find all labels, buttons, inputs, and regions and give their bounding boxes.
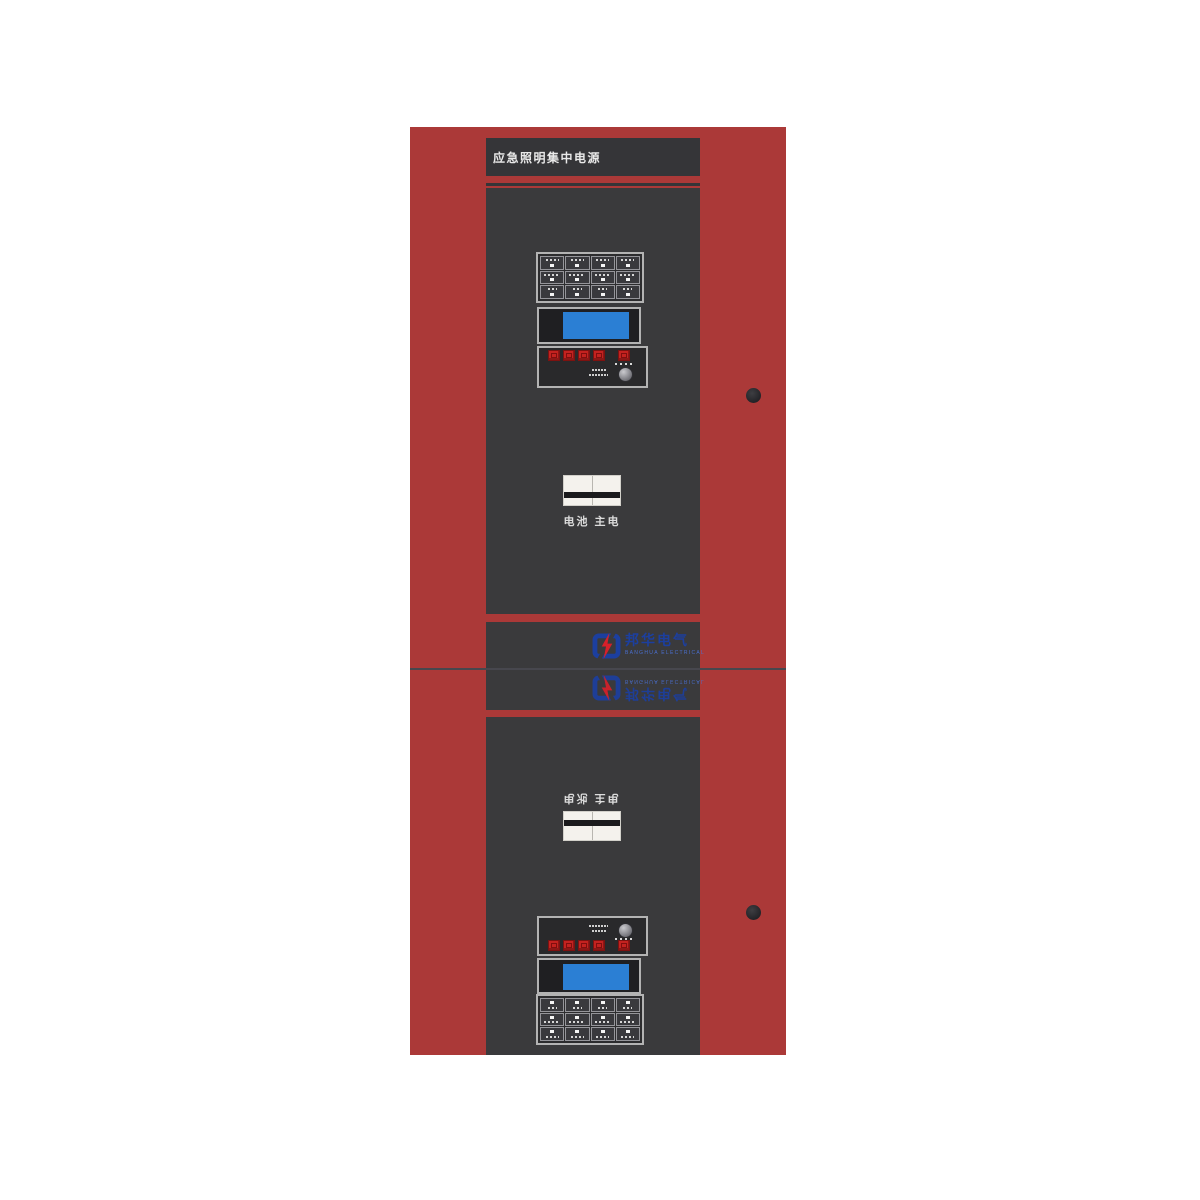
micro-label	[595, 1021, 611, 1023]
indicator-button[interactable]	[616, 271, 640, 285]
micro-label	[569, 1021, 585, 1023]
micro-label	[620, 274, 636, 276]
indicator-button[interactable]	[591, 271, 615, 285]
red-button-3[interactable]	[578, 350, 590, 361]
indicator-led	[601, 1001, 605, 1004]
top-breaker-switch[interactable]	[563, 475, 621, 506]
bottom-breaker-switch[interactable]	[563, 811, 621, 841]
bottom-unit-panel: 电池 主电	[486, 717, 700, 1055]
indicator-led	[626, 264, 630, 267]
top-control-panel	[537, 346, 648, 388]
page: 应急照明集中电源	[0, 0, 1200, 1200]
indicator-led	[575, 1001, 579, 1004]
micro-label	[621, 1036, 634, 1038]
bottom-indicator-button-grid	[536, 994, 644, 1045]
indicator-led	[601, 293, 605, 296]
indicator-button[interactable]	[616, 1027, 640, 1041]
brand-name: 邦华电气	[625, 633, 705, 648]
micro-label	[596, 1036, 609, 1038]
red-button-1[interactable]	[548, 940, 560, 951]
indicator-led	[550, 1030, 554, 1033]
micro-label	[571, 1036, 584, 1038]
micro-label	[569, 274, 585, 276]
indicator-led	[550, 278, 554, 281]
micro-label	[595, 274, 611, 276]
indicator-led	[626, 1030, 630, 1033]
indicator-button[interactable]	[565, 998, 589, 1012]
breaker-toggle-band	[564, 820, 620, 826]
micro-caption	[589, 369, 608, 376]
top-lcd-screen	[563, 312, 629, 339]
red-button-2[interactable]	[563, 940, 575, 951]
indicator-button[interactable]	[565, 1013, 589, 1027]
indicator-button[interactable]	[540, 998, 564, 1012]
indicator-button[interactable]	[591, 1027, 615, 1041]
red-button-3[interactable]	[578, 940, 590, 951]
indicator-led	[575, 1030, 579, 1033]
indicator-button[interactable]	[565, 271, 589, 285]
cabinet-title: 应急照明集中电源	[486, 149, 601, 166]
micro-label	[598, 1007, 607, 1009]
brand-subtitle: BANGHUA ELECTRICAL	[625, 678, 705, 684]
indicator-button[interactable]	[540, 271, 564, 285]
red-button-5[interactable]	[618, 940, 630, 951]
bottom-control-panel	[537, 916, 648, 956]
indicator-led	[601, 264, 605, 267]
indicator-led	[575, 264, 579, 267]
key-lock-knob[interactable]	[618, 923, 633, 938]
indicator-led	[601, 1030, 605, 1033]
indicator-led	[575, 278, 579, 281]
red-button-4[interactable]	[593, 940, 605, 951]
indicator-led	[626, 278, 630, 281]
cabinet-seam-line	[410, 668, 786, 670]
indicator-led	[550, 264, 554, 267]
indicator-button[interactable]	[616, 998, 640, 1012]
micro-label	[573, 288, 582, 290]
indicator-button[interactable]	[565, 285, 589, 299]
micro-label	[548, 1007, 557, 1009]
indicator-led	[626, 1001, 630, 1004]
brand-subtitle: BANGHUA ELECTRICAL	[625, 650, 705, 656]
brand-logo-reflection: 邦华电气 BANGHUA ELECTRICAL	[592, 675, 705, 701]
red-button-5[interactable]	[618, 350, 630, 361]
indicator-led	[601, 1016, 605, 1019]
top-unit-panel: 电池 主电	[486, 188, 700, 614]
indicator-led	[575, 293, 579, 296]
top-lcd-display	[537, 307, 641, 344]
indicator-button[interactable]	[591, 1013, 615, 1027]
micro-caption	[589, 925, 608, 932]
red-button-1[interactable]	[548, 350, 560, 361]
brand-name: 邦华电气	[625, 686, 705, 701]
breaker-toggle-band	[564, 492, 620, 498]
micro-label	[546, 1036, 559, 1038]
indicator-button[interactable]	[591, 285, 615, 299]
screw-hole-top	[746, 388, 761, 403]
indicator-button[interactable]	[565, 256, 589, 270]
indicator-button[interactable]	[616, 285, 640, 299]
top-indicator-button-grid	[536, 252, 644, 303]
micro-label	[573, 1007, 582, 1009]
indicator-led	[550, 1001, 554, 1004]
indicator-led	[550, 1016, 554, 1019]
micro-label	[620, 1021, 636, 1023]
micro-label	[623, 288, 632, 290]
indicator-button[interactable]	[591, 256, 615, 270]
power-supply-cabinet: 应急照明集中电源	[410, 127, 786, 1055]
indicator-led	[575, 1016, 579, 1019]
indicator-button[interactable]	[591, 998, 615, 1012]
indicator-led	[601, 278, 605, 281]
logo-lightning-icon	[592, 675, 621, 701]
micro-label	[621, 259, 634, 261]
indicator-button[interactable]	[540, 1013, 564, 1027]
key-lock-knob[interactable]	[618, 367, 633, 382]
indicator-button[interactable]	[540, 256, 564, 270]
indicator-button[interactable]	[540, 285, 564, 299]
indicator-button[interactable]	[616, 256, 640, 270]
brand-logo: 邦华电气 BANGHUA ELECTRICAL	[592, 633, 705, 659]
indicator-led	[626, 1016, 630, 1019]
micro-label	[544, 274, 560, 276]
middle-logo-bar: 邦华电气 BANGHUA ELECTRICAL 邦华电气 BANGHUA ELE…	[486, 622, 700, 710]
knob-tick-marks	[615, 363, 632, 365]
breaker-label-mirrored: 电池 主电	[542, 791, 642, 807]
micro-label	[598, 288, 607, 290]
red-button-2[interactable]	[563, 350, 575, 361]
breaker-label: 电池 主电	[542, 513, 642, 529]
micro-label	[623, 1007, 632, 1009]
logo-lightning-icon	[592, 633, 621, 659]
indicator-button[interactable]	[616, 1013, 640, 1027]
micro-label	[544, 1021, 560, 1023]
breaker-divider	[592, 812, 593, 840]
screw-hole-bottom	[746, 905, 761, 920]
indicator-led	[626, 293, 630, 296]
bottom-lcd-screen	[563, 964, 629, 990]
micro-label	[546, 259, 559, 261]
breaker-divider	[592, 476, 593, 505]
bottom-lcd-display	[537, 958, 641, 994]
micro-label	[571, 259, 584, 261]
micro-label	[596, 259, 609, 261]
header-divider-strip	[486, 183, 700, 186]
indicator-led	[550, 293, 554, 296]
cabinet-nameplate: 应急照明集中电源	[486, 138, 700, 176]
indicator-button[interactable]	[540, 1027, 564, 1041]
red-button-4[interactable]	[593, 350, 605, 361]
micro-label	[548, 288, 557, 290]
indicator-button[interactable]	[565, 1027, 589, 1041]
